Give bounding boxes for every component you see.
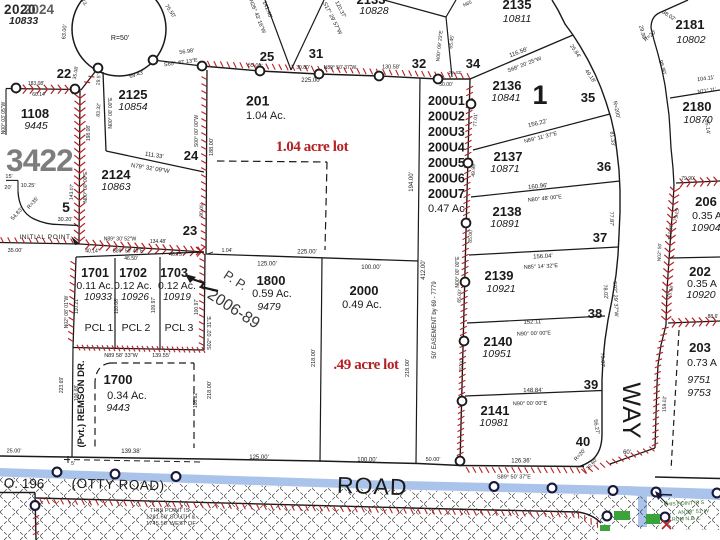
svg-text:77.87': 77.87' bbox=[608, 211, 615, 226]
svg-text:200U2: 200U2 bbox=[428, 110, 465, 124]
svg-text:1: 1 bbox=[532, 80, 547, 110]
svg-text:2140: 2140 bbox=[484, 334, 513, 349]
svg-text:201: 201 bbox=[246, 93, 270, 109]
svg-text:9753: 9753 bbox=[687, 387, 711, 399]
svg-text:N00° 00' 00"E: N00° 00' 00"E bbox=[83, 171, 89, 203]
svg-text:412.00': 412.00' bbox=[421, 260, 427, 280]
svg-text:2136: 2136 bbox=[493, 78, 522, 93]
svg-text:.49 acre lot: .49 acre lot bbox=[333, 357, 399, 373]
svg-text:50' EASEMENT by 69 - 7779: 50' EASEMENT by 69 - 7779 bbox=[432, 281, 438, 359]
svg-text:10871: 10871 bbox=[490, 163, 519, 175]
svg-text:2125: 2125 bbox=[119, 87, 148, 102]
svg-text:2138: 2138 bbox=[493, 204, 522, 219]
svg-text:0.11 Ac.: 0.11 Ac. bbox=[76, 280, 113, 292]
svg-text:(Pvt.) REMSON DR.: (Pvt.) REMSON DR. bbox=[76, 360, 87, 447]
svg-text:5: 5 bbox=[62, 199, 70, 215]
svg-text:2124: 2124 bbox=[102, 167, 132, 182]
svg-text:S89° 50' 40"E: S89° 50' 40"E bbox=[113, 249, 145, 255]
svg-text:2181: 2181 bbox=[676, 17, 705, 32]
svg-text:60': 60' bbox=[623, 450, 631, 456]
svg-text:10891: 10891 bbox=[490, 218, 519, 230]
svg-text:88.6': 88.6' bbox=[708, 314, 719, 320]
svg-text:39: 39 bbox=[584, 377, 598, 392]
svg-text:10981: 10981 bbox=[479, 417, 508, 429]
svg-text:ROAD: ROAD bbox=[337, 472, 408, 500]
svg-text:N02° 08' 01"W: N02° 08' 01"W bbox=[64, 295, 70, 328]
svg-text:40: 40 bbox=[576, 434, 590, 449]
svg-text:32: 32 bbox=[412, 56, 426, 71]
svg-text:50.00': 50.00' bbox=[426, 457, 441, 463]
svg-text:9445: 9445 bbox=[24, 120, 48, 132]
svg-text:0.12 Ac.: 0.12 Ac. bbox=[114, 280, 152, 292]
svg-text:2137: 2137 bbox=[494, 149, 523, 164]
svg-text:10919: 10919 bbox=[163, 292, 191, 303]
svg-text:INITIAL POINT: INITIAL POINT bbox=[19, 234, 70, 241]
svg-text:0.35 A: 0.35 A bbox=[692, 210, 720, 222]
svg-text:10811: 10811 bbox=[503, 13, 531, 25]
svg-text:200U7: 200U7 bbox=[428, 187, 465, 201]
svg-text:0.34 Ac.: 0.34 Ac. bbox=[107, 390, 147, 402]
svg-text:200U4: 200U4 bbox=[428, 141, 465, 155]
svg-text:PCL 3: PCL 3 bbox=[165, 322, 194, 334]
svg-text:188.00': 188.00' bbox=[209, 138, 215, 156]
svg-text:O. 196: O. 196 bbox=[4, 476, 45, 492]
svg-text:75.00': 75.00' bbox=[459, 358, 465, 372]
svg-text:198.08': 198.08' bbox=[86, 125, 92, 141]
svg-text:S89° 50' 37"E: S89° 50' 37"E bbox=[497, 475, 531, 481]
svg-text:N89° 50' 37"W: N89° 50' 37"W bbox=[324, 65, 357, 71]
svg-text:10854: 10854 bbox=[118, 101, 147, 113]
svg-text:126.36': 126.36' bbox=[511, 459, 531, 465]
svg-text:2180: 2180 bbox=[683, 99, 712, 114]
svg-text:10841: 10841 bbox=[491, 92, 520, 104]
svg-text:2000: 2000 bbox=[350, 283, 379, 298]
svg-text:PCL 2: PCL 2 bbox=[122, 322, 151, 334]
svg-text:202: 202 bbox=[689, 264, 711, 279]
svg-text:2135: 2135 bbox=[503, 0, 532, 12]
svg-text:218.00': 218.00' bbox=[405, 359, 411, 377]
svg-text:10904: 10904 bbox=[691, 222, 720, 234]
svg-text:30.20': 30.20' bbox=[58, 217, 73, 223]
svg-text:1800: 1800 bbox=[257, 273, 286, 288]
svg-text:85.00': 85.00' bbox=[468, 229, 475, 243]
svg-text:2139: 2139 bbox=[485, 268, 514, 283]
svg-text:139.38': 139.38' bbox=[121, 449, 141, 455]
svg-text:31: 31 bbox=[309, 46, 323, 61]
svg-text:75.07': 75.07' bbox=[599, 352, 606, 367]
svg-text:10921: 10921 bbox=[486, 283, 515, 295]
svg-text:218.00': 218.00' bbox=[207, 381, 213, 399]
svg-text:20': 20' bbox=[4, 185, 11, 191]
svg-text:N00° 00' 00"E: N00° 00' 00"E bbox=[108, 97, 114, 129]
svg-text:10828: 10828 bbox=[359, 5, 388, 17]
svg-text:36: 36 bbox=[597, 159, 611, 174]
svg-text:N90° 00' 00"E: N90° 00' 00"E bbox=[513, 401, 548, 408]
svg-text:143.07': 143.07' bbox=[69, 184, 76, 201]
svg-text:9751: 9751 bbox=[687, 374, 710, 386]
svg-text:10870: 10870 bbox=[683, 114, 712, 126]
svg-text:40.14': 40.14' bbox=[85, 249, 99, 255]
svg-text:10926: 10926 bbox=[121, 292, 149, 303]
svg-text:1703: 1703 bbox=[160, 266, 188, 280]
svg-text:1701: 1701 bbox=[81, 266, 109, 280]
svg-text:200U3: 200U3 bbox=[428, 125, 465, 139]
svg-text:110.21': 110.21' bbox=[74, 298, 80, 314]
svg-text:9443: 9443 bbox=[106, 402, 130, 414]
svg-text:1.04 acre lot: 1.04 acre lot bbox=[276, 139, 349, 155]
svg-text:10951: 10951 bbox=[482, 348, 511, 360]
svg-text:24: 24 bbox=[184, 148, 199, 163]
svg-text:125.00': 125.00' bbox=[249, 455, 269, 461]
svg-text:223.69': 223.69' bbox=[59, 377, 65, 393]
svg-text:5': 5' bbox=[71, 461, 75, 467]
svg-text:34: 34 bbox=[466, 56, 481, 71]
svg-text:152.11': 152.11' bbox=[523, 319, 542, 326]
svg-text:1.04 Ac.: 1.04 Ac. bbox=[246, 110, 286, 122]
svg-text:N02° 50': N02° 50' bbox=[657, 243, 664, 262]
svg-text:0.47 Ac.: 0.47 Ac. bbox=[428, 203, 468, 215]
svg-text:1745.50' WEST OF: 1745.50' WEST OF bbox=[146, 521, 196, 527]
svg-text:S02° 02' 31"E: S02° 02' 31"E bbox=[207, 316, 213, 350]
svg-text:3422: 3422 bbox=[6, 142, 73, 178]
svg-text:25: 25 bbox=[260, 49, 274, 64]
svg-text:109.97': 109.97' bbox=[151, 297, 157, 313]
svg-text:194.00': 194.00' bbox=[409, 172, 415, 192]
svg-text:PCL 1: PCL 1 bbox=[85, 322, 114, 334]
svg-text:100.97': 100.97' bbox=[194, 299, 200, 315]
svg-text:10833: 10833 bbox=[9, 15, 38, 27]
svg-text:110.08': 110.08' bbox=[114, 298, 120, 314]
svg-text:S00° 00' 00"W: S00° 00' 00"W bbox=[194, 115, 200, 148]
svg-text:R=50': R=50' bbox=[111, 35, 129, 42]
svg-text:200U5: 200U5 bbox=[428, 156, 465, 170]
svg-text:65.00': 65.00' bbox=[457, 289, 463, 303]
svg-text:25.00': 25.00' bbox=[7, 449, 22, 455]
svg-text:1700: 1700 bbox=[104, 372, 133, 387]
svg-text:83.32': 83.32' bbox=[96, 103, 103, 117]
svg-text:29.5': 29.5' bbox=[96, 74, 103, 85]
svg-text:0.49 Ac.: 0.49 Ac. bbox=[342, 299, 382, 311]
svg-text:N90° 00' 00"E: N90° 00' 00"E bbox=[517, 330, 552, 337]
svg-text:148.84': 148.84' bbox=[523, 388, 543, 394]
svg-text:22: 22 bbox=[57, 66, 71, 81]
svg-text:200U6: 200U6 bbox=[428, 172, 465, 186]
svg-text:206: 206 bbox=[695, 194, 717, 209]
svg-text:46.50': 46.50' bbox=[124, 256, 138, 262]
svg-text:23: 23 bbox=[183, 223, 197, 238]
svg-text:30.80': 30.80' bbox=[296, 65, 310, 71]
svg-text:29.43': 29.43' bbox=[449, 70, 462, 76]
svg-text:10802: 10802 bbox=[676, 34, 705, 46]
svg-text:1281.60' SOUTH &: 1281.60' SOUTH & bbox=[146, 515, 196, 521]
svg-text:200U1: 200U1 bbox=[428, 94, 465, 108]
svg-text:225.00': 225.00' bbox=[297, 250, 317, 256]
svg-text:203: 203 bbox=[689, 340, 711, 355]
svg-text:108.82': 108.82' bbox=[193, 392, 199, 408]
svg-text:WAY: WAY bbox=[617, 382, 645, 439]
svg-text:10920: 10920 bbox=[686, 289, 715, 301]
svg-text:9479: 9479 bbox=[257, 301, 281, 313]
svg-text:79.90': 79.90' bbox=[681, 176, 695, 182]
svg-text:0.59 Ac.: 0.59 Ac. bbox=[252, 288, 292, 300]
svg-text:1702: 1702 bbox=[119, 266, 147, 280]
svg-text:60.14': 60.14' bbox=[32, 92, 46, 98]
svg-text:10933: 10933 bbox=[84, 292, 112, 303]
svg-text:10863: 10863 bbox=[101, 181, 130, 193]
svg-text:15': 15' bbox=[5, 174, 12, 180]
svg-text:1108: 1108 bbox=[21, 106, 49, 121]
svg-text:134.48': 134.48' bbox=[150, 239, 166, 245]
svg-text:125.00': 125.00' bbox=[257, 262, 277, 268]
svg-text:1.04': 1.04' bbox=[222, 248, 233, 254]
svg-text:10.25': 10.25' bbox=[21, 183, 36, 189]
svg-text:N00° 03' 05"W: N00° 03' 05"W bbox=[1, 101, 7, 134]
svg-text:156.04': 156.04' bbox=[533, 253, 553, 260]
svg-text:N89° 30' 52"W: N89° 30' 52"W bbox=[104, 237, 137, 243]
svg-text:139.55': 139.55' bbox=[152, 353, 170, 359]
svg-text:38: 38 bbox=[588, 306, 602, 321]
svg-text:100.00': 100.00' bbox=[361, 265, 381, 271]
svg-text:100.00': 100.00' bbox=[357, 458, 377, 464]
svg-text:77.01': 77.01' bbox=[473, 113, 480, 127]
svg-text:218.00': 218.00' bbox=[311, 349, 317, 367]
svg-text:35: 35 bbox=[581, 90, 595, 105]
svg-text:80.05': 80.05' bbox=[199, 203, 206, 217]
svg-text:0.73 A: 0.73 A bbox=[687, 357, 717, 369]
svg-text:2141: 2141 bbox=[481, 403, 510, 418]
svg-text:0.12 Ac.: 0.12 Ac. bbox=[158, 280, 196, 292]
svg-text:46.75': 46.75' bbox=[169, 252, 183, 258]
svg-text:35.00': 35.00' bbox=[8, 248, 23, 254]
svg-text:183.08': 183.08' bbox=[28, 81, 44, 87]
svg-text:37: 37 bbox=[593, 230, 607, 245]
svg-text:THIS POINT IS: THIS POINT IS bbox=[150, 508, 190, 514]
svg-text:130.58': 130.58' bbox=[382, 65, 400, 71]
svg-text:N89 58' 33"W: N89 58' 33"W bbox=[104, 353, 138, 359]
svg-text:159.02': 159.02' bbox=[662, 396, 669, 412]
